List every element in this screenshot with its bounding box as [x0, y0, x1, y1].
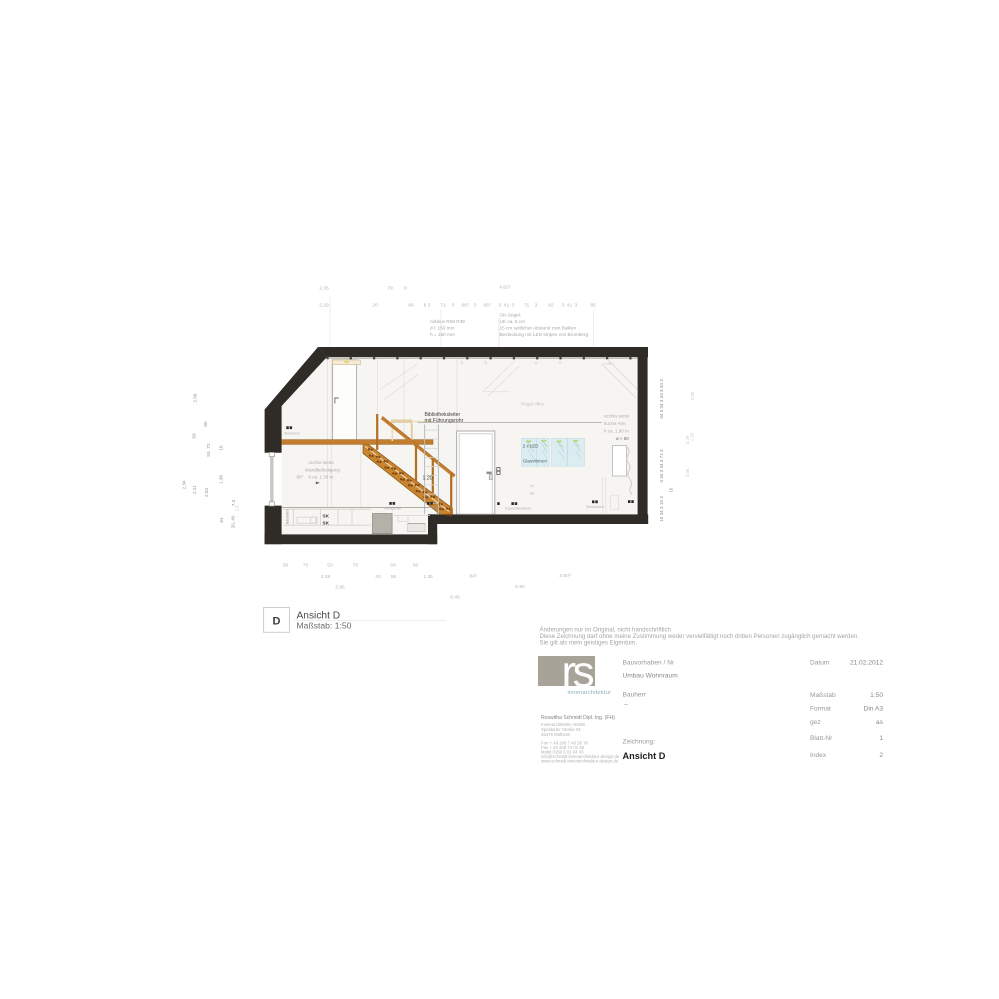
svg-text:Maßstab: 1:50: Maßstab: 1:50 — [297, 621, 352, 631]
svg-text:3: 3 — [499, 303, 502, 309]
svg-text:66³: 66³ — [461, 303, 468, 309]
svg-text:Din A3: Din A3 — [864, 706, 884, 713]
svg-text:3: 3 — [562, 303, 565, 309]
svg-text:Datum: Datum — [810, 660, 830, 667]
svg-text:www.schmidt-innenarchitektur-d: www.schmidt-innenarchitektur-design.de — [541, 759, 619, 764]
svg-text:30: 30 — [283, 563, 289, 569]
svg-text:2.34: 2.34 — [181, 480, 186, 489]
svg-text:4.62⁵: 4.62⁵ — [499, 285, 511, 291]
svg-text:71: 71 — [524, 303, 530, 309]
svg-text:72: 72 — [206, 443, 211, 449]
svg-text:8 3: 8 3 — [424, 303, 431, 309]
svg-text:85: 85 — [590, 303, 596, 309]
svg-text:3.95: 3.95 — [335, 585, 345, 591]
svg-text:20: 20 — [375, 574, 381, 580]
svg-text:GK-Segel:: GK-Segel: — [500, 313, 522, 318]
svg-text:41: 41 — [504, 303, 510, 309]
svg-text:h ca. 1.30 m: h ca. 1.30 m — [309, 474, 334, 479]
svg-text:16: 16 — [218, 445, 223, 451]
svg-text:1.90: 1.90 — [690, 391, 695, 400]
svg-text:90°: 90° — [297, 474, 304, 479]
svg-text:as: as — [876, 719, 884, 726]
svg-text:21.02.2012: 21.02.2012 — [850, 660, 883, 667]
svg-text:16: 16 — [669, 487, 674, 492]
svg-text:41: 41 — [567, 303, 573, 309]
svg-text:5.80: 5.80 — [515, 584, 525, 590]
svg-text:Blatt-Nr: Blatt-Nr — [810, 735, 833, 742]
svg-text:71: 71 — [440, 303, 446, 309]
svg-text:Umbau Wohnraum: Umbau Wohnraum — [623, 673, 679, 680]
svg-text:82: 82 — [548, 303, 554, 309]
svg-text:D: D — [273, 615, 281, 627]
svg-text:ø ≈ 60: ø ≈ 60 — [616, 436, 629, 441]
svg-text:15 cm seitlicher Abstand zum B: 15 cm seitlicher Abstand zum Balken — [500, 325, 577, 330]
svg-text:2.56: 2.56 — [193, 393, 198, 402]
svg-text:20, 40: 20, 40 — [231, 515, 236, 528]
svg-text:66³: 66³ — [483, 303, 490, 309]
svg-text:50: 50 — [413, 563, 419, 569]
svg-text:3: 3 — [535, 303, 538, 309]
svg-text:2.00: 2.00 — [685, 468, 690, 477]
svg-text:2.29: 2.29 — [321, 574, 331, 580]
svg-text:2.3: 2.3 — [235, 505, 240, 511]
svg-text:Roswitha Schmidt Dipl. Ing. (F: Roswitha Schmidt Dipl. Ing. (FH) — [541, 715, 615, 721]
svg-text:3: 3 — [575, 303, 578, 309]
svg-text:TK: TK — [530, 485, 535, 489]
svg-text:Ansicht D: Ansicht D — [623, 751, 666, 761]
svg-text:Bibliotheksleiter: Bibliotheksleiter — [425, 412, 461, 418]
svg-text:2.04: 2.04 — [204, 488, 209, 497]
svg-text:Doppelsteckdose: Doppelsteckdose — [505, 507, 531, 511]
svg-text:Index: Index — [810, 752, 827, 759]
svg-text:64: 64 — [390, 563, 396, 569]
svg-text:34 3 34 3 34 3 34 3: 34 3 34 3 34 3 34 3 — [659, 379, 664, 419]
svg-text:nimbus RIM R39: nimbus RIM R39 — [430, 319, 465, 324]
svg-text:6.45: 6.45 — [450, 595, 460, 601]
svg-text:3: 3 — [474, 303, 477, 309]
svg-text:3.60³: 3.60³ — [559, 573, 571, 579]
svg-text:2: 2 — [879, 752, 883, 759]
svg-text:2 x LED: 2 x LED — [523, 443, 539, 448]
svg-text:SK: SK — [530, 491, 536, 495]
svg-text:84³: 84³ — [469, 574, 476, 580]
svg-text:70: 70 — [353, 563, 359, 569]
svg-text:Bauvorhaben / Nr: Bauvorhaben / Nr — [623, 660, 675, 667]
svg-text:1.20: 1.20 — [423, 476, 433, 482]
svg-text:7.3: 7.3 — [231, 499, 236, 506]
svg-text:gez: gez — [810, 719, 821, 726]
svg-text:56: 56 — [391, 574, 397, 580]
svg-text:Sie gilt als mein geistiges Ei: Sie gilt als mein geistiges Eigentum. — [540, 640, 638, 647]
svg-text:kurzer Arm: kurzer Arm — [604, 421, 626, 426]
svg-text:1:50: 1:50 — [870, 692, 883, 699]
svg-text:occhio sento: occhio sento — [604, 413, 630, 418]
svg-text:50: 50 — [327, 563, 333, 569]
svg-text:3: 3 — [512, 303, 515, 309]
svg-text:66: 66 — [408, 303, 414, 309]
svg-text:SK: SK — [323, 521, 330, 526]
svg-text:Glasvitrinen: Glasvitrinen — [523, 459, 548, 464]
svg-text:mit Führungsrohr: mit Führungsrohr — [425, 418, 464, 424]
svg-text:8: 8 — [404, 286, 407, 292]
svg-text:1.35: 1.35 — [423, 574, 433, 580]
svg-text:Zeichnung:: Zeichnung: — [623, 739, 656, 746]
svg-text:innenarchitektur: innenarchitektur — [568, 690, 612, 696]
svg-text:1.50: 1.50 — [690, 432, 695, 441]
svg-text:79: 79 — [387, 286, 393, 292]
svg-text:2.21: 2.21 — [192, 485, 197, 494]
svg-text:53: 53 — [206, 451, 211, 457]
svg-text:85: 85 — [203, 421, 208, 427]
svg-text:Regal offen: Regal offen — [521, 402, 545, 407]
svg-text:2.29: 2.29 — [319, 303, 329, 309]
svg-text:d i: 150 mm: d i: 150 mm — [430, 325, 455, 330]
svg-text:3 34 3 34 3 71 3: 3 34 3 34 3 71 3 — [659, 449, 664, 483]
svg-text:Format: Format — [810, 706, 831, 713]
svg-text:3: 3 — [452, 303, 455, 309]
svg-text:Steckdosen: Steckdosen — [586, 505, 604, 509]
svg-text:70: 70 — [303, 563, 309, 569]
svg-text:Steckdose: Steckdose — [284, 432, 300, 436]
svg-text:10 34 3 15 3: 10 34 3 15 3 — [659, 496, 664, 522]
svg-text:Bauherr: Bauherr — [623, 692, 647, 699]
svg-text:Bestückung mit LED-stripes von: Bestückung mit LED-stripes von Brumberg — [500, 332, 589, 337]
svg-text:64: 64 — [219, 517, 224, 523]
svg-text:h = 150 mm: h = 150 mm — [430, 332, 455, 337]
svg-text:occhio sento: occhio sento — [309, 460, 335, 465]
svg-text:1.38: 1.38 — [218, 475, 223, 484]
svg-text:–: – — [624, 702, 628, 709]
svg-text:20: 20 — [372, 303, 378, 309]
svg-text:Maßstab: Maßstab — [810, 692, 836, 699]
svg-text:59: 59 — [192, 433, 197, 439]
svg-text:2.36: 2.36 — [319, 286, 329, 292]
svg-text:h ca. 1.90 m: h ca. 1.90 m — [604, 428, 629, 433]
svg-text:SK: SK — [323, 514, 330, 519]
svg-text:Wandbefestigung: Wandbefestigung — [305, 467, 340, 472]
svg-text:1: 1 — [879, 735, 883, 742]
svg-text:Backofen: Backofen — [286, 509, 290, 524]
svg-text:UK ca. 5 cm: UK ca. 5 cm — [500, 319, 526, 324]
svg-text:45479 Mülheim: 45479 Mülheim — [541, 732, 571, 737]
